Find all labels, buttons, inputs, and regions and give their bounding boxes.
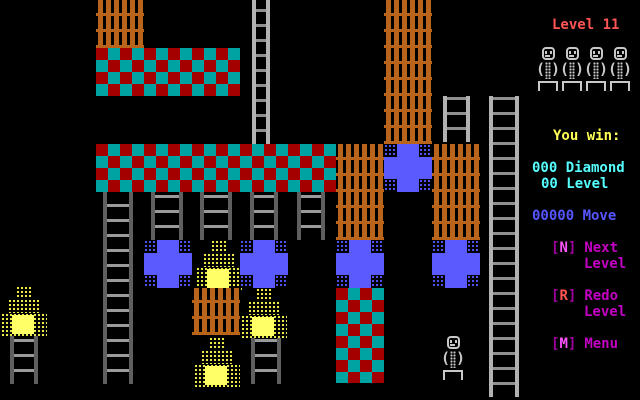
- blue-cross-sprite: [144, 240, 192, 288]
- player-head-icon: [542, 47, 555, 60]
- diamond-counter: 000 Diamond: [532, 160, 625, 176]
- player-body-icon: (): [560, 62, 584, 79]
- blue-cross-sprite: [384, 144, 432, 192]
- flame-dither: [248, 301, 280, 315]
- body-paren: ): [575, 61, 584, 78]
- flame-dither: [201, 350, 233, 364]
- player-body-icon: (): [441, 351, 465, 368]
- menu-item-label: Next: [584, 240, 618, 256]
- cross-arm-horizontal: [432, 253, 480, 275]
- player-character: (): [608, 47, 632, 94]
- game-screen: () Level 11 ()()()() You win: 000 Diamon…: [0, 0, 640, 400]
- cross-dither: [371, 240, 384, 253]
- brick-block: [96, 0, 144, 48]
- cross-dither: [144, 275, 157, 288]
- flame-core: [205, 366, 227, 385]
- brick-block: [384, 0, 432, 144]
- hotkey-m: M: [559, 336, 567, 352]
- cross-dither: [371, 275, 384, 288]
- cross-dither: [275, 240, 288, 253]
- blue-cross-sprite: [432, 240, 480, 288]
- menu-item-menu[interactable]: [M]Menu: [551, 336, 618, 352]
- body-paren: ): [623, 61, 632, 78]
- menu-item-next-line2: Level: [584, 256, 626, 272]
- cross-dither: [144, 240, 157, 253]
- ladder: [200, 192, 232, 240]
- body-paren: ): [456, 350, 465, 367]
- ladder: [10, 336, 38, 384]
- cross-dither: [275, 275, 288, 288]
- cross-dither: [419, 179, 432, 192]
- player-body-icon: (): [584, 62, 608, 79]
- brick-block: [336, 144, 384, 240]
- cross-dither: [384, 144, 397, 157]
- flame-dither: [256, 288, 272, 301]
- flame-dither: [8, 299, 40, 313]
- cross-dither: [179, 275, 192, 288]
- ladder: [250, 192, 278, 240]
- player-head-icon: [590, 47, 603, 60]
- player-feet-icon: [610, 81, 630, 91]
- bracket: ]: [568, 240, 576, 256]
- blue-cross-sprite: [240, 240, 288, 288]
- brick-block: [432, 144, 480, 240]
- ladder: [297, 192, 325, 240]
- player-head-icon: [447, 336, 460, 349]
- body-paren: ): [599, 61, 608, 78]
- flame-sprite: [1, 286, 47, 336]
- cross-dither: [240, 240, 253, 253]
- body-paren: ): [551, 61, 560, 78]
- body-paren: (: [608, 61, 617, 78]
- menu-item-label: Menu: [584, 336, 618, 352]
- menu-item-next[interactable]: [N]Next: [551, 240, 618, 256]
- player-feet-icon: [538, 81, 558, 91]
- blue-cross-sprite: [336, 240, 384, 288]
- brick-block: [192, 288, 240, 335]
- flame-dither: [16, 286, 32, 299]
- menu-item-redo[interactable]: [R]Redo: [551, 288, 618, 304]
- ladder: [103, 192, 133, 384]
- cross-arm-horizontal: [384, 157, 432, 179]
- flame-core: [12, 315, 34, 334]
- player-feet-icon: [562, 81, 582, 91]
- cross-arm-horizontal: [144, 253, 192, 275]
- cross-dither: [336, 275, 349, 288]
- cross-dither: [336, 240, 349, 253]
- player-character: (): [536, 47, 560, 94]
- cross-dither: [467, 275, 480, 288]
- player-character: (): [441, 336, 465, 383]
- level-label: Level 11: [552, 17, 619, 33]
- flame-sprite: [241, 288, 287, 338]
- player-character: (): [560, 47, 584, 94]
- ladder: [489, 96, 519, 397]
- ladder: [252, 0, 270, 144]
- player-feet-icon: [586, 81, 606, 91]
- menu-item-redo-line2: Level: [584, 304, 626, 320]
- body-paren: (: [560, 61, 569, 78]
- cross-arm-horizontal: [336, 253, 384, 275]
- body-paren: (: [441, 350, 450, 367]
- body-paren: (: [584, 61, 593, 78]
- level-counter: 00 Level: [541, 176, 608, 192]
- cross-dither: [432, 275, 445, 288]
- flame-core: [207, 269, 229, 288]
- checker-block: [96, 48, 240, 96]
- hotkey-r: R: [559, 288, 567, 304]
- bracket: ]: [568, 288, 576, 304]
- player-character: (): [584, 47, 608, 94]
- move-counter: 00000 Move: [532, 208, 616, 224]
- flame-dither: [203, 253, 235, 267]
- body-paren: (: [536, 61, 545, 78]
- lives-row: ()()()(): [536, 47, 632, 94]
- ladder: [151, 192, 183, 240]
- you-win-label: You win:: [553, 128, 620, 144]
- menu-item-label: Redo: [584, 288, 618, 304]
- cross-dither: [179, 240, 192, 253]
- player-body-icon: (): [608, 62, 632, 79]
- cross-dither: [384, 179, 397, 192]
- bracket: ]: [568, 336, 576, 352]
- flame-sprite: [196, 240, 242, 290]
- player-head-icon: [614, 47, 627, 60]
- checker-block: [96, 144, 336, 192]
- flame-core: [252, 317, 274, 336]
- ladder: [443, 96, 470, 142]
- player-head-icon: [566, 47, 579, 60]
- hotkey-n: N: [559, 240, 567, 256]
- player-feet-icon: [443, 370, 463, 380]
- cross-dither: [240, 275, 253, 288]
- flame-dither: [211, 240, 227, 253]
- cross-arm-horizontal: [240, 253, 288, 275]
- cross-dither: [467, 240, 480, 253]
- flame-sprite: [194, 337, 240, 387]
- ladder: [251, 338, 281, 384]
- player-body-icon: (): [536, 62, 560, 79]
- checker-block: [336, 288, 384, 383]
- flame-dither: [209, 337, 225, 350]
- cross-dither: [419, 144, 432, 157]
- cross-dither: [432, 240, 445, 253]
